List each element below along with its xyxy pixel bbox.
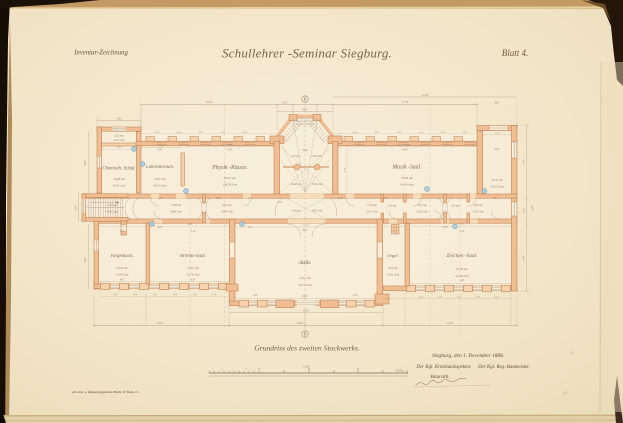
svg-text:40 Mtr.: 40 Mtr. bbox=[396, 369, 405, 373]
svg-text:4,20: 4,20 bbox=[75, 205, 78, 210]
svg-text:Chemisch. Schul.: Chemisch. Schul. bbox=[102, 167, 135, 172]
svg-text:75,04 cbm: 75,04 cbm bbox=[311, 183, 323, 186]
svg-text:Laboratorium.: Laboratorium. bbox=[145, 165, 174, 170]
svg-text:11,70 qm: 11,70 qm bbox=[107, 204, 118, 207]
svg-text:16,47: 16,47 bbox=[206, 101, 213, 104]
svg-text:1: 1 bbox=[211, 368, 212, 370]
svg-text:1,30: 1,30 bbox=[353, 294, 358, 297]
svg-text:14,67: 14,67 bbox=[402, 149, 409, 152]
svg-text:8,90: 8,90 bbox=[187, 223, 192, 226]
svg-text:5,92: 5,92 bbox=[117, 118, 122, 121]
svg-text:9,47: 9,47 bbox=[84, 257, 87, 262]
svg-text:12,87: 12,87 bbox=[447, 322, 454, 325]
svg-text:14,67: 14,67 bbox=[405, 143, 411, 146]
svg-text:4,10: 4,10 bbox=[443, 226, 448, 229]
svg-text:6,93 qm: 6,93 qm bbox=[474, 204, 484, 207]
svg-text:17,88 qm: 17,88 qm bbox=[171, 204, 182, 207]
svg-text:6,47: 6,47 bbox=[248, 197, 253, 200]
svg-text:1,75: 1,75 bbox=[158, 197, 163, 200]
svg-text:4,87: 4,87 bbox=[495, 102, 500, 105]
svg-text:18,87: 18,87 bbox=[532, 204, 535, 211]
svg-text:5,18 qm: 5,18 qm bbox=[291, 155, 301, 158]
svg-text:17,41 cbm: 17,41 cbm bbox=[472, 211, 484, 214]
svg-text:4,67: 4,67 bbox=[303, 109, 308, 112]
svg-text:4,67: 4,67 bbox=[278, 201, 283, 204]
svg-text:4,47: 4,47 bbox=[191, 279, 196, 282]
svg-text:17,96 cbm: 17,96 cbm bbox=[310, 155, 322, 158]
svg-text:1,93 qm: 1,93 qm bbox=[451, 205, 460, 208]
svg-text:11,50 qm: 11,50 qm bbox=[367, 204, 378, 207]
svg-text:9,47: 9,47 bbox=[158, 149, 163, 152]
svg-text:2,88: 2,88 bbox=[303, 149, 308, 152]
svg-text:4,47: 4,47 bbox=[523, 255, 526, 260]
svg-text:Inventar-Zeichnung: Inventar-Zeichnung bbox=[73, 50, 128, 57]
svg-text:22,10: 22,10 bbox=[422, 94, 429, 97]
svg-text:Orgel.: Orgel. bbox=[387, 253, 399, 258]
svg-text:3,10: 3,10 bbox=[338, 197, 343, 200]
svg-text:Zeichen -Saal.: Zeichen -Saal. bbox=[446, 253, 477, 259]
svg-text:5,10: 5,10 bbox=[191, 230, 196, 233]
svg-text:8,63 qm: 8,63 qm bbox=[223, 204, 233, 207]
svg-text:Der Kgl. Kreisbauinspektor.: Der Kgl. Kreisbauinspektor. bbox=[416, 365, 472, 370]
svg-text:3,92: 3,92 bbox=[117, 146, 122, 149]
svg-text:3,10: 3,10 bbox=[495, 131, 500, 134]
svg-text:Abt. Inst. u. Regierungsgebäud: Abt. Inst. u. Regierungsgebäude Berlin W… bbox=[72, 390, 139, 394]
svg-text:Vorgemach.: Vorgemach. bbox=[110, 254, 134, 259]
svg-text:16,01 cbm: 16,01 cbm bbox=[387, 273, 400, 277]
svg-text:Der Kgl. Reg.-Baumeister.: Der Kgl. Reg.-Baumeister. bbox=[477, 365, 530, 370]
svg-text:16,97 cbm: 16,97 cbm bbox=[312, 210, 323, 213]
svg-text:4,40: 4,40 bbox=[159, 144, 164, 147]
svg-text:2,97 qm: 2,97 qm bbox=[418, 204, 428, 207]
svg-text:2,92 qm: 2,92 qm bbox=[388, 205, 397, 208]
svg-text:5,47: 5,47 bbox=[120, 223, 125, 226]
svg-text:2,92 qm: 2,92 qm bbox=[115, 135, 125, 138]
svg-text:4,47: 4,47 bbox=[120, 279, 125, 282]
svg-text:Physik -Klasse.: Physik -Klasse. bbox=[211, 165, 248, 171]
svg-text:13,47: 13,47 bbox=[157, 322, 164, 325]
svg-text:26,08 qm: 26,08 qm bbox=[291, 183, 302, 186]
svg-text:2,97: 2,97 bbox=[383, 197, 388, 200]
svg-text:9,47: 9,47 bbox=[228, 149, 233, 152]
svg-text:43,41 cbm: 43,41 cbm bbox=[106, 211, 118, 214]
svg-text:5,08 qm: 5,08 qm bbox=[292, 210, 301, 213]
svg-text:1,30: 1,30 bbox=[253, 294, 258, 297]
svg-text:17,35: 17,35 bbox=[402, 101, 409, 104]
svg-text:Aula.: Aula. bbox=[298, 260, 312, 266]
svg-text:11,27: 11,27 bbox=[458, 223, 464, 226]
svg-text:1,20: 1,20 bbox=[523, 208, 526, 213]
svg-text:15,97: 15,97 bbox=[303, 224, 309, 227]
svg-text:4,47: 4,47 bbox=[158, 226, 163, 229]
svg-text:1,48: 1,48 bbox=[460, 279, 465, 282]
svg-text:43,96 cbm: 43,96 cbm bbox=[170, 211, 182, 214]
svg-text:Arbeits-Saal.: Arbeits-Saal. bbox=[179, 254, 206, 259]
svg-text:8,92: 8,92 bbox=[84, 160, 87, 165]
svg-text:28,41 cbm: 28,41 cbm bbox=[366, 211, 378, 214]
svg-text:2,07: 2,07 bbox=[283, 101, 288, 104]
svg-text:Musik -Saal.: Musik -Saal. bbox=[391, 165, 421, 171]
svg-text:9,97: 9,97 bbox=[227, 143, 232, 146]
svg-text:Schullehrer -Seminar Siegburg.: Schullehrer -Seminar Siegburg. bbox=[222, 46, 392, 61]
svg-text:B: B bbox=[304, 97, 307, 102]
svg-text:2,30: 2,30 bbox=[120, 230, 125, 233]
svg-text:Baurath.: Baurath. bbox=[430, 374, 449, 380]
svg-text:6,85: 6,85 bbox=[303, 229, 308, 232]
svg-text:10,45 cbm: 10,45 cbm bbox=[113, 139, 125, 142]
svg-text:44,07: 44,07 bbox=[297, 322, 304, 325]
svg-text:23,96 cbm: 23,96 cbm bbox=[221, 211, 233, 214]
svg-text:4,50: 4,50 bbox=[344, 167, 347, 172]
svg-text:Grundriss des zweiten Stockwer: Grundriss des zweiten Stockwerks. bbox=[254, 344, 360, 353]
svg-text:6,10: 6,10 bbox=[460, 230, 465, 233]
svg-text:4,47: 4,47 bbox=[248, 226, 253, 229]
svg-text:15,35: 15,35 bbox=[303, 309, 310, 312]
svg-text:13,41 cbm: 13,41 cbm bbox=[416, 211, 428, 214]
svg-text:B: B bbox=[304, 332, 307, 337]
svg-text:4,50: 4,50 bbox=[523, 159, 526, 164]
svg-text:10,97: 10,97 bbox=[302, 295, 309, 298]
svg-text:5,10: 5,10 bbox=[216, 197, 221, 200]
svg-text:3,44: 3,44 bbox=[495, 148, 500, 151]
svg-text:Blatt 4.: Blatt 4. bbox=[502, 48, 529, 58]
svg-text:Siegburg, den 1. December 1888: Siegburg, den 1. December 1888. bbox=[432, 353, 504, 359]
svg-text:8,50 qm: 8,50 qm bbox=[388, 266, 398, 270]
svg-text:4,87: 4,87 bbox=[493, 197, 498, 200]
